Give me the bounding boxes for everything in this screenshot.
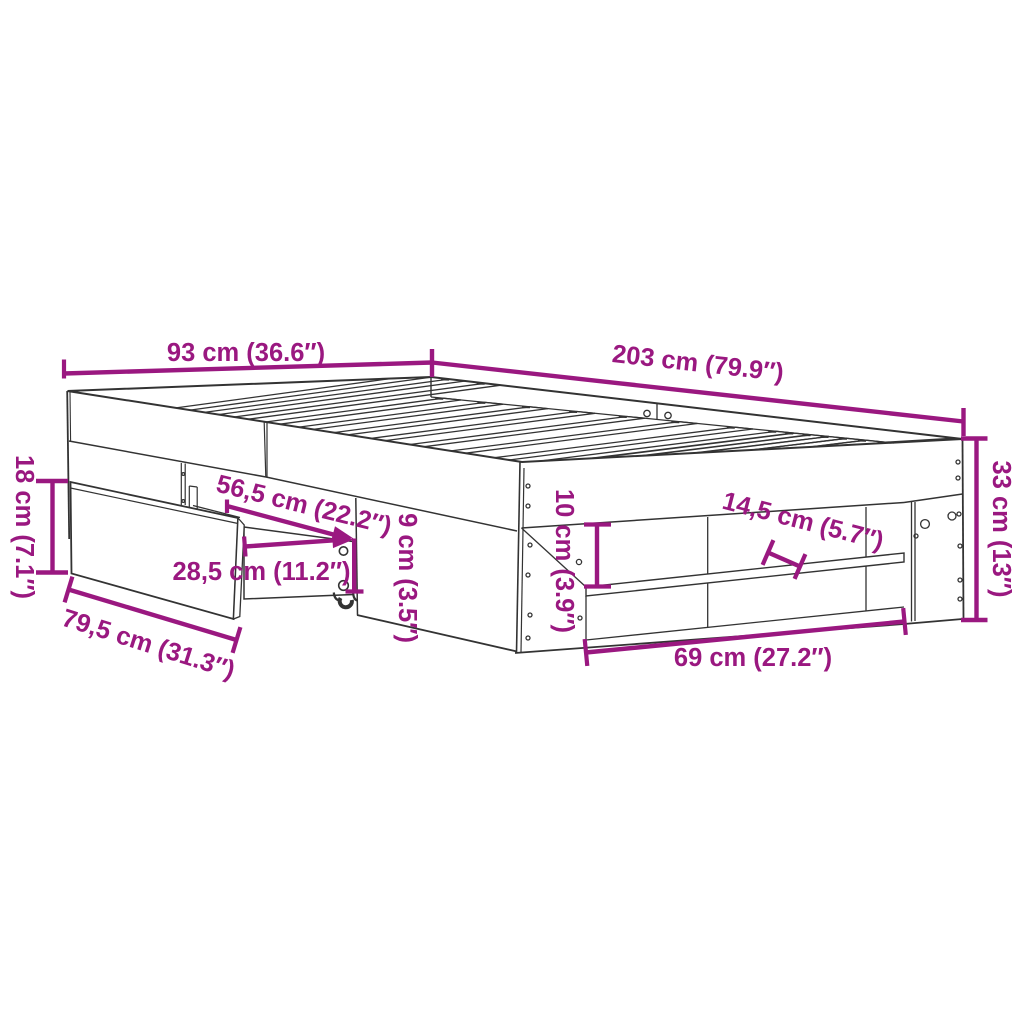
svg-text:9 cm (3.5″): 9 cm (3.5″)	[393, 513, 421, 643]
svg-text:28,5 cm (11.2″): 28,5 cm (11.2″)	[172, 558, 350, 586]
svg-text:93 cm (36.6″): 93 cm (36.6″)	[167, 339, 325, 367]
svg-text:69 cm (27.2″): 69 cm (27.2″)	[674, 644, 832, 672]
svg-text:18 cm (7.1″): 18 cm (7.1″)	[10, 455, 38, 599]
svg-text:10 cm (3.9″): 10 cm (3.9″)	[550, 489, 578, 633]
svg-text:33 cm (13″): 33 cm (13″)	[987, 461, 1015, 598]
